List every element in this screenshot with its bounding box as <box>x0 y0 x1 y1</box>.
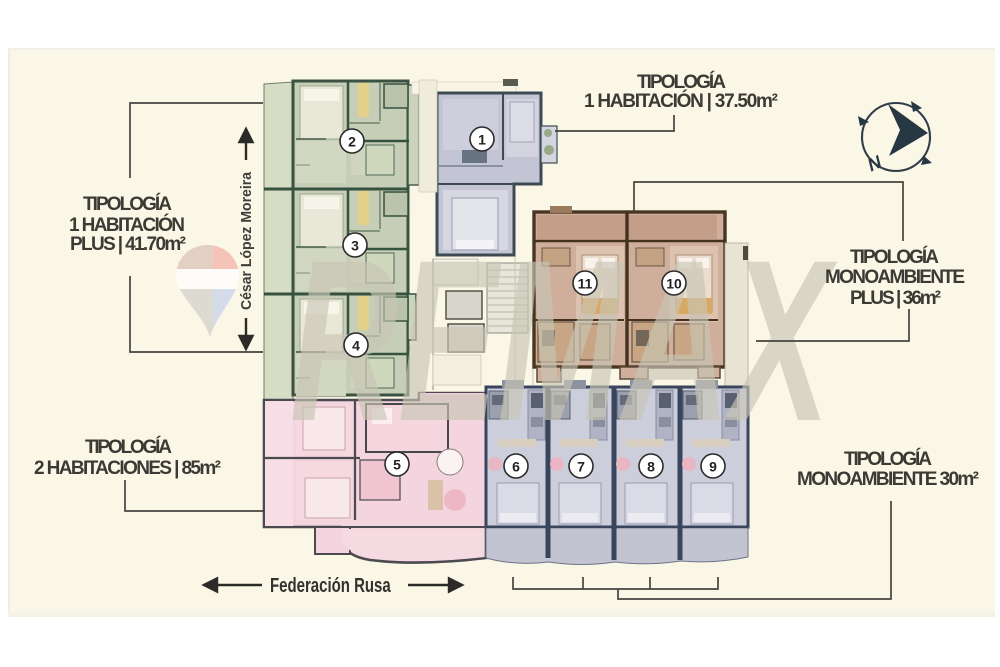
svg-text:TIPOLOGÍA: TIPOLOGÍA <box>637 71 726 93</box>
svg-text:4: 4 <box>352 338 360 354</box>
svg-text:César López Moreira: César López Moreira <box>238 171 255 310</box>
svg-text:9: 9 <box>709 459 717 475</box>
svg-text:MONOAMBIENTE: MONOAMBIENTE <box>825 267 965 288</box>
svg-text:11: 11 <box>578 276 593 292</box>
svg-text:2 HABITACIONES | 85m²: 2 HABITACIONES | 85m² <box>34 458 221 479</box>
svg-text:PLUS | 36m²: PLUS | 36m² <box>850 288 941 309</box>
svg-text:PLUS | 41.70m²: PLUS | 41.70m² <box>70 234 186 255</box>
svg-text:1: 1 <box>478 132 486 148</box>
svg-text:Federación Rusa: Federación Rusa <box>270 574 391 597</box>
svg-text:1 HABITACIÓN | 37.50m²: 1 HABITACIÓN | 37.50m² <box>584 90 778 112</box>
svg-text:1 HABITACIÓN: 1 HABITACIÓN <box>69 214 185 236</box>
svg-text:TIPOLOGÍA: TIPOLOGÍA <box>850 246 939 268</box>
svg-text:TIPOLOGÍA: TIPOLOGÍA <box>844 448 932 470</box>
svg-text:TIPOLOGÍA: TIPOLOGÍA <box>85 436 172 458</box>
svg-text:6: 6 <box>512 459 520 475</box>
svg-text:2: 2 <box>348 134 356 150</box>
svg-text:MONOAMBIENTE 30m²: MONOAMBIENTE 30m² <box>797 469 979 490</box>
svg-text:REMAX: REMAX <box>290 212 838 469</box>
svg-text:5: 5 <box>393 457 401 473</box>
svg-text:7: 7 <box>577 459 585 475</box>
svg-text:TIPOLOGÍA: TIPOLOGÍA <box>83 193 172 215</box>
svg-text:10: 10 <box>666 276 682 292</box>
svg-text:8: 8 <box>647 459 655 475</box>
svg-text:3: 3 <box>351 238 359 254</box>
